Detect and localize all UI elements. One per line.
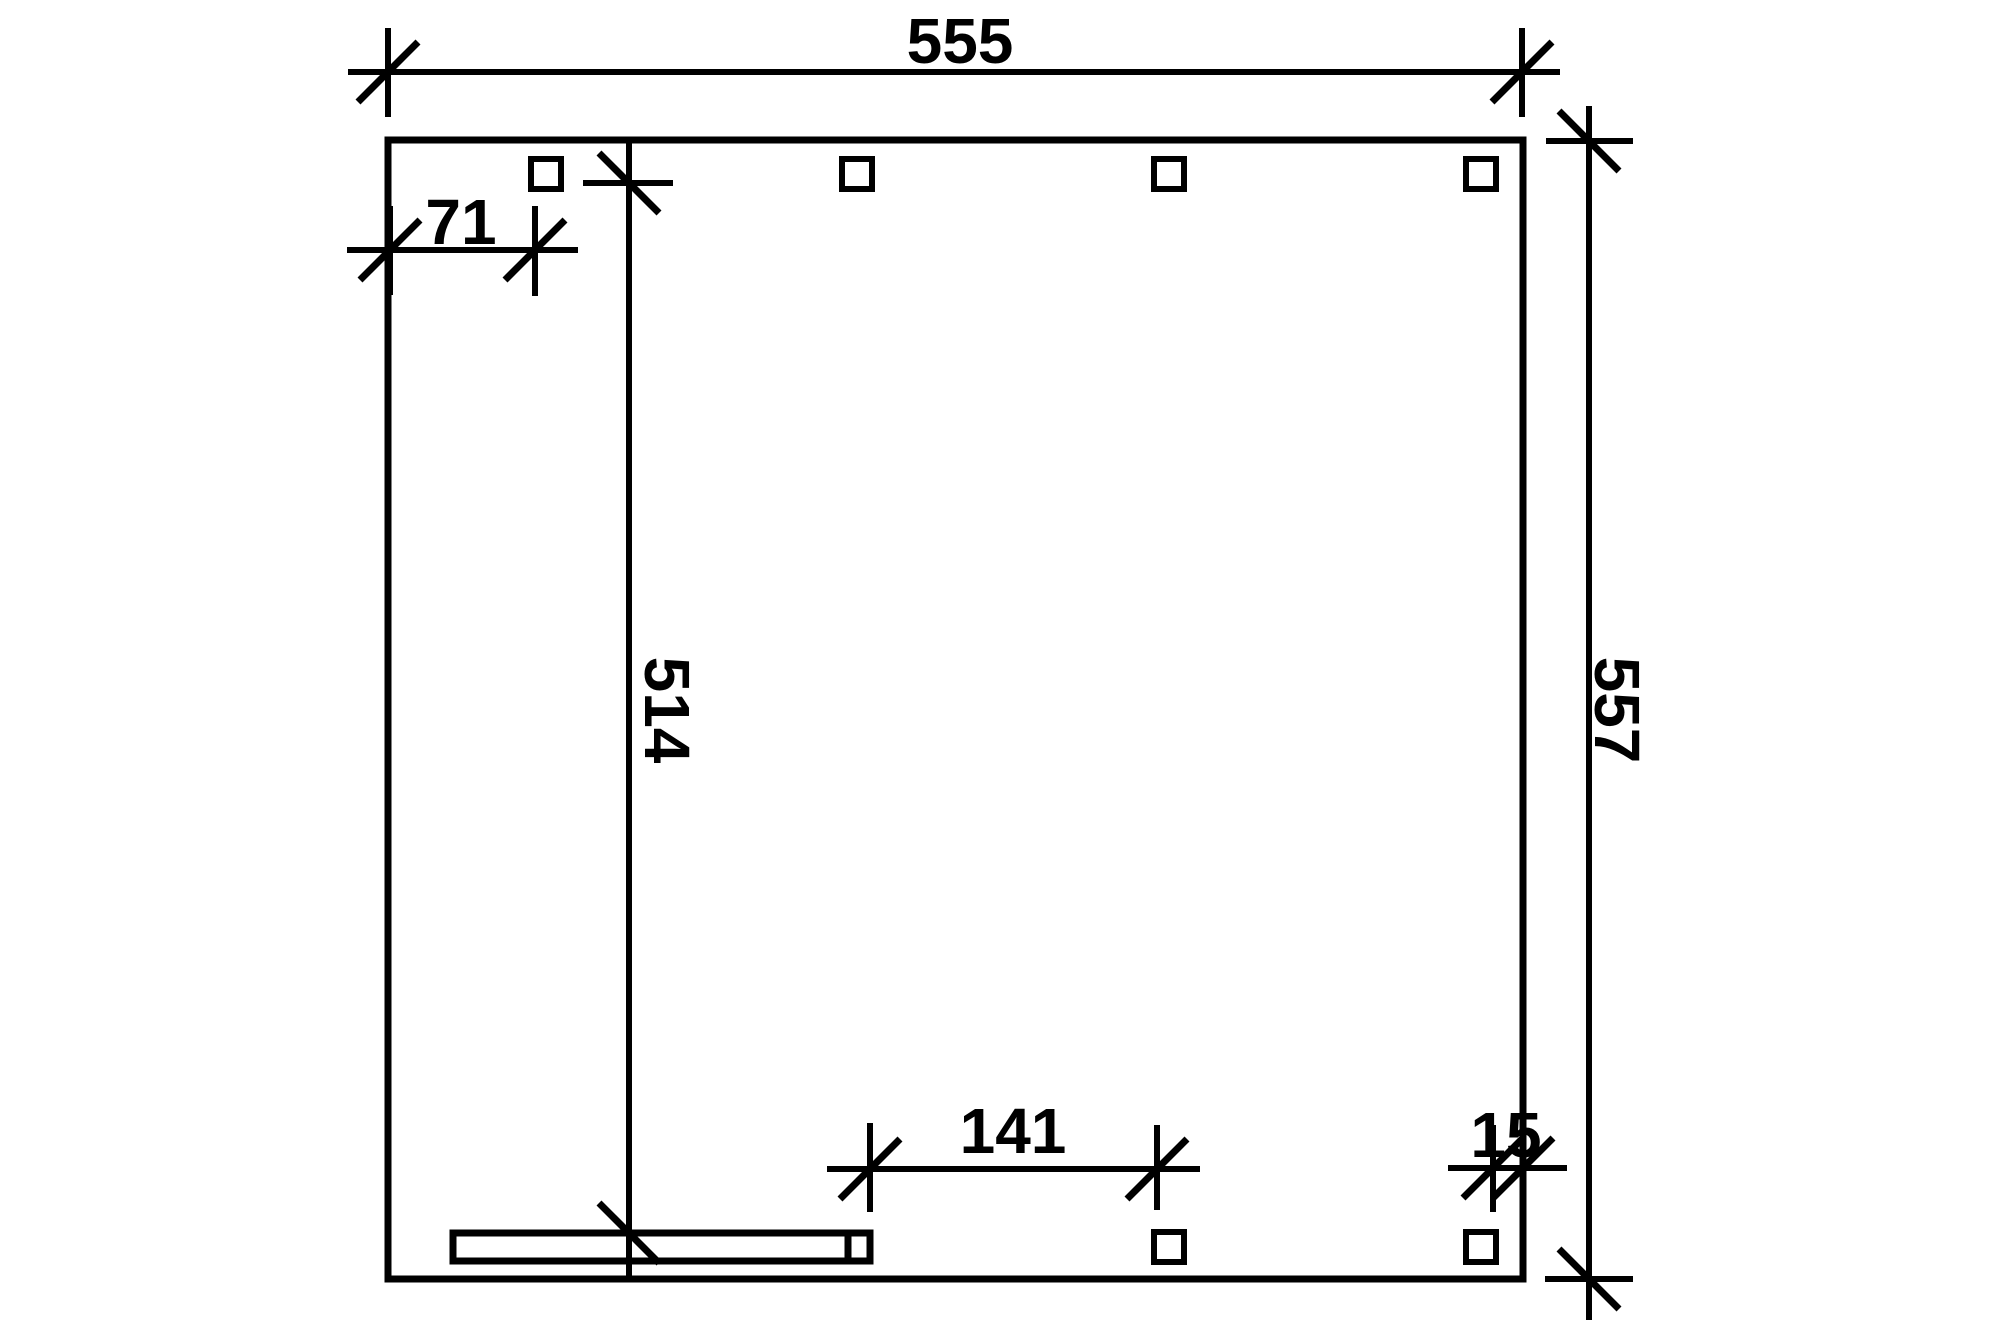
post-bottom-1 xyxy=(1154,1232,1184,1262)
dim-post-spacing: 141 xyxy=(827,1095,1200,1212)
dim-label-inner-length: 514 xyxy=(631,657,703,764)
post-top-1 xyxy=(531,159,561,189)
post-top-2 xyxy=(842,159,872,189)
drawing-canvas: 555 71 514 557 141 1 xyxy=(0,0,2000,1333)
dim-edge-offset: 15 xyxy=(1448,1099,1567,1212)
post-row-bottom xyxy=(1154,1232,1496,1262)
dim-inner-length: 514 xyxy=(583,153,703,1263)
dim-left-offset: 71 xyxy=(347,186,578,296)
post-top-4 xyxy=(1466,159,1496,189)
post-top-3 xyxy=(1154,159,1184,189)
plan-drawing: 555 71 514 557 141 1 xyxy=(0,0,2000,1333)
dim-label-total-height: 557 xyxy=(1581,657,1653,764)
dim-label-post-spacing: 141 xyxy=(960,1095,1067,1167)
dim-total-height: 557 xyxy=(1545,106,1653,1320)
outline-rect xyxy=(388,140,1523,1279)
post-row-top xyxy=(531,159,1496,189)
dim-top-width: 555 xyxy=(348,5,1560,117)
bottom-bar xyxy=(453,1233,870,1261)
post-bottom-2 xyxy=(1466,1232,1496,1262)
dim-label-left-offset: 71 xyxy=(425,186,496,258)
dim-label-edge-offset: 15 xyxy=(1470,1099,1541,1171)
bar-outline xyxy=(453,1233,870,1261)
dim-label-total-width: 555 xyxy=(907,5,1014,77)
